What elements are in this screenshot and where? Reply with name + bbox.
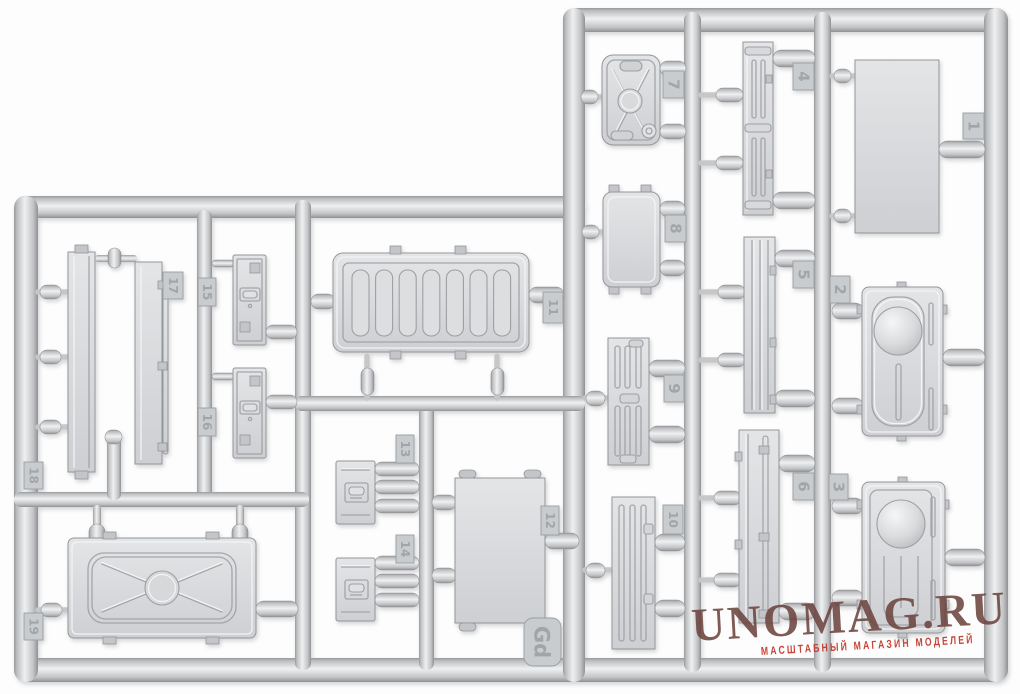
part-number-label: 7 <box>664 79 682 89</box>
part-number-label: 4 <box>794 71 812 81</box>
part-number-label: 8 <box>666 223 684 233</box>
part-number-label: 15 <box>200 284 214 301</box>
part-4-slatted-plank <box>743 42 773 215</box>
sprue-illustration: 1 2 3 4 5 6 7 8 9 10 11 12 13 1 <box>0 0 1020 694</box>
part-number-tag: 13 <box>396 435 414 463</box>
part-number-tag: 7 <box>663 71 684 98</box>
part-13-latch-plate <box>336 461 375 524</box>
part-number-label: 11 <box>546 299 560 316</box>
part-number-tag: 15 <box>198 278 216 306</box>
part-number-tag: 2 <box>830 276 850 303</box>
part-number-label: 10 <box>666 511 680 528</box>
part-16-hasp-plate <box>233 368 266 458</box>
part-number-tag: 18 <box>24 462 43 489</box>
part-12-flat-panel <box>455 470 545 631</box>
part-10-slotted-plank <box>612 497 655 649</box>
part-2-dome-panel <box>857 282 947 441</box>
sprue-plastic: 1 2 3 4 5 6 7 8 9 10 11 12 13 1 <box>14 8 1008 682</box>
part-number-tag: 11 <box>543 292 563 323</box>
part-number-label: 16 <box>200 414 214 431</box>
part-number-tag: 14 <box>396 535 414 563</box>
part-number-tag: 9 <box>664 375 684 402</box>
part-14-latch-plate <box>336 558 375 621</box>
part-15-hasp-plate <box>233 255 266 345</box>
sprue-photo: 1 2 3 4 5 6 7 8 9 10 11 12 13 1 <box>0 0 1020 694</box>
part-number-tag: 1 <box>963 113 984 139</box>
part-number-label: 14 <box>398 541 412 558</box>
sprue-code-label: Gd <box>530 626 554 658</box>
part-number-label: 12 <box>543 512 557 529</box>
part-number-label: 13 <box>398 441 412 458</box>
part-number-tag: 5 <box>793 261 814 288</box>
part-number-tag: 16 <box>198 408 216 436</box>
part-number-tag: 10 <box>663 505 683 534</box>
part-number-label: 5 <box>794 269 812 279</box>
part-1-flat-panel <box>855 60 939 233</box>
part-19-hatch-door <box>68 532 256 644</box>
part-number-label: 9 <box>665 383 683 393</box>
part-7-jerry-can <box>602 55 660 145</box>
watermark: UNOMAG.RU МАСШТАБНЫЙ МАГАЗИН МОДЕЛЕЙ <box>690 582 1009 662</box>
part-9-slotted-plank <box>608 338 649 465</box>
part-18-long-board <box>68 245 95 479</box>
part-number-tag: 4 <box>793 63 814 90</box>
part-number-label: 19 <box>26 618 40 635</box>
part-number-label: 17 <box>166 277 180 294</box>
part-number-tag: 19 <box>24 613 43 640</box>
part-number-tag: 6 <box>793 473 814 500</box>
part-8-stowage-box <box>603 185 660 294</box>
part-number-label: 18 <box>26 467 40 484</box>
part-6-wide-plank <box>735 430 779 623</box>
part-number-label: 1 <box>964 121 982 131</box>
part-number-tag: 3 <box>829 474 848 500</box>
part-5-ribbed-plank <box>744 237 776 413</box>
part-11-louvered-panel <box>333 246 529 359</box>
part-number-tag: 12 <box>541 506 559 535</box>
part-number-label: 3 <box>829 482 847 492</box>
part-number-tag: 17 <box>163 272 183 299</box>
part-number-tag: 8 <box>665 215 686 242</box>
part-number-label: 6 <box>794 481 812 491</box>
part-number-label: 2 <box>831 284 849 294</box>
sprue-code-tag: Gd <box>524 618 561 666</box>
